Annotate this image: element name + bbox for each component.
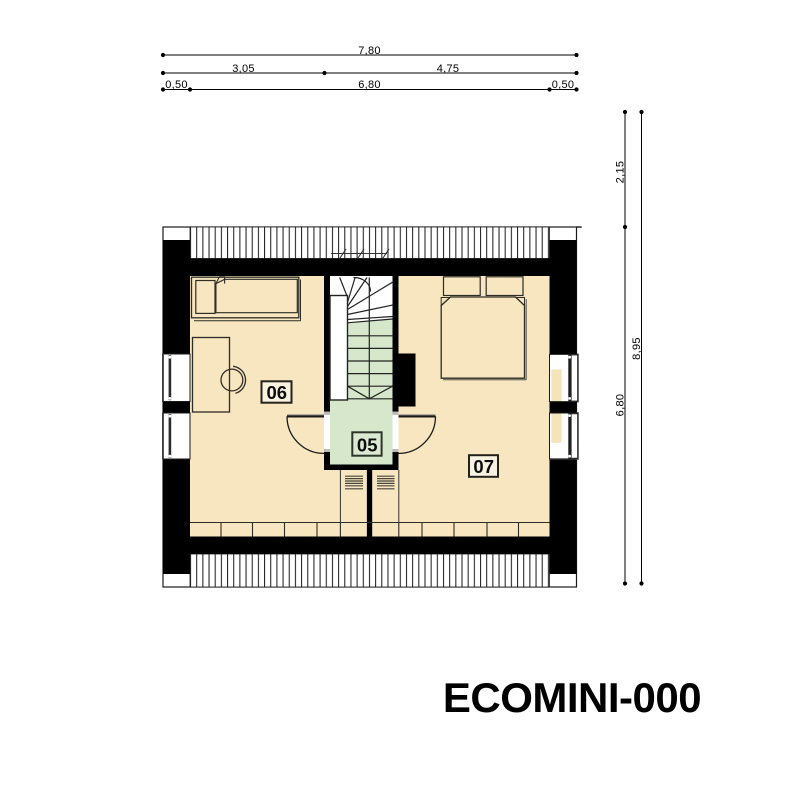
svg-text:3,05: 3,05 xyxy=(232,63,255,75)
svg-text:8,95: 8,95 xyxy=(631,337,643,360)
svg-text:06: 06 xyxy=(267,382,288,403)
svg-text:6,80: 6,80 xyxy=(358,79,381,91)
svg-text:4,75: 4,75 xyxy=(437,63,460,75)
svg-text:7,80: 7,80 xyxy=(358,45,381,57)
svg-text:2,15: 2,15 xyxy=(615,161,627,184)
svg-text:07: 07 xyxy=(473,456,494,477)
svg-text:0,50: 0,50 xyxy=(552,79,575,91)
svg-text:ECOMINI-000: ECOMINI-000 xyxy=(443,674,701,721)
svg-text:6,80: 6,80 xyxy=(615,394,627,417)
svg-text:05: 05 xyxy=(357,434,378,455)
svg-text:0,50: 0,50 xyxy=(165,79,188,91)
